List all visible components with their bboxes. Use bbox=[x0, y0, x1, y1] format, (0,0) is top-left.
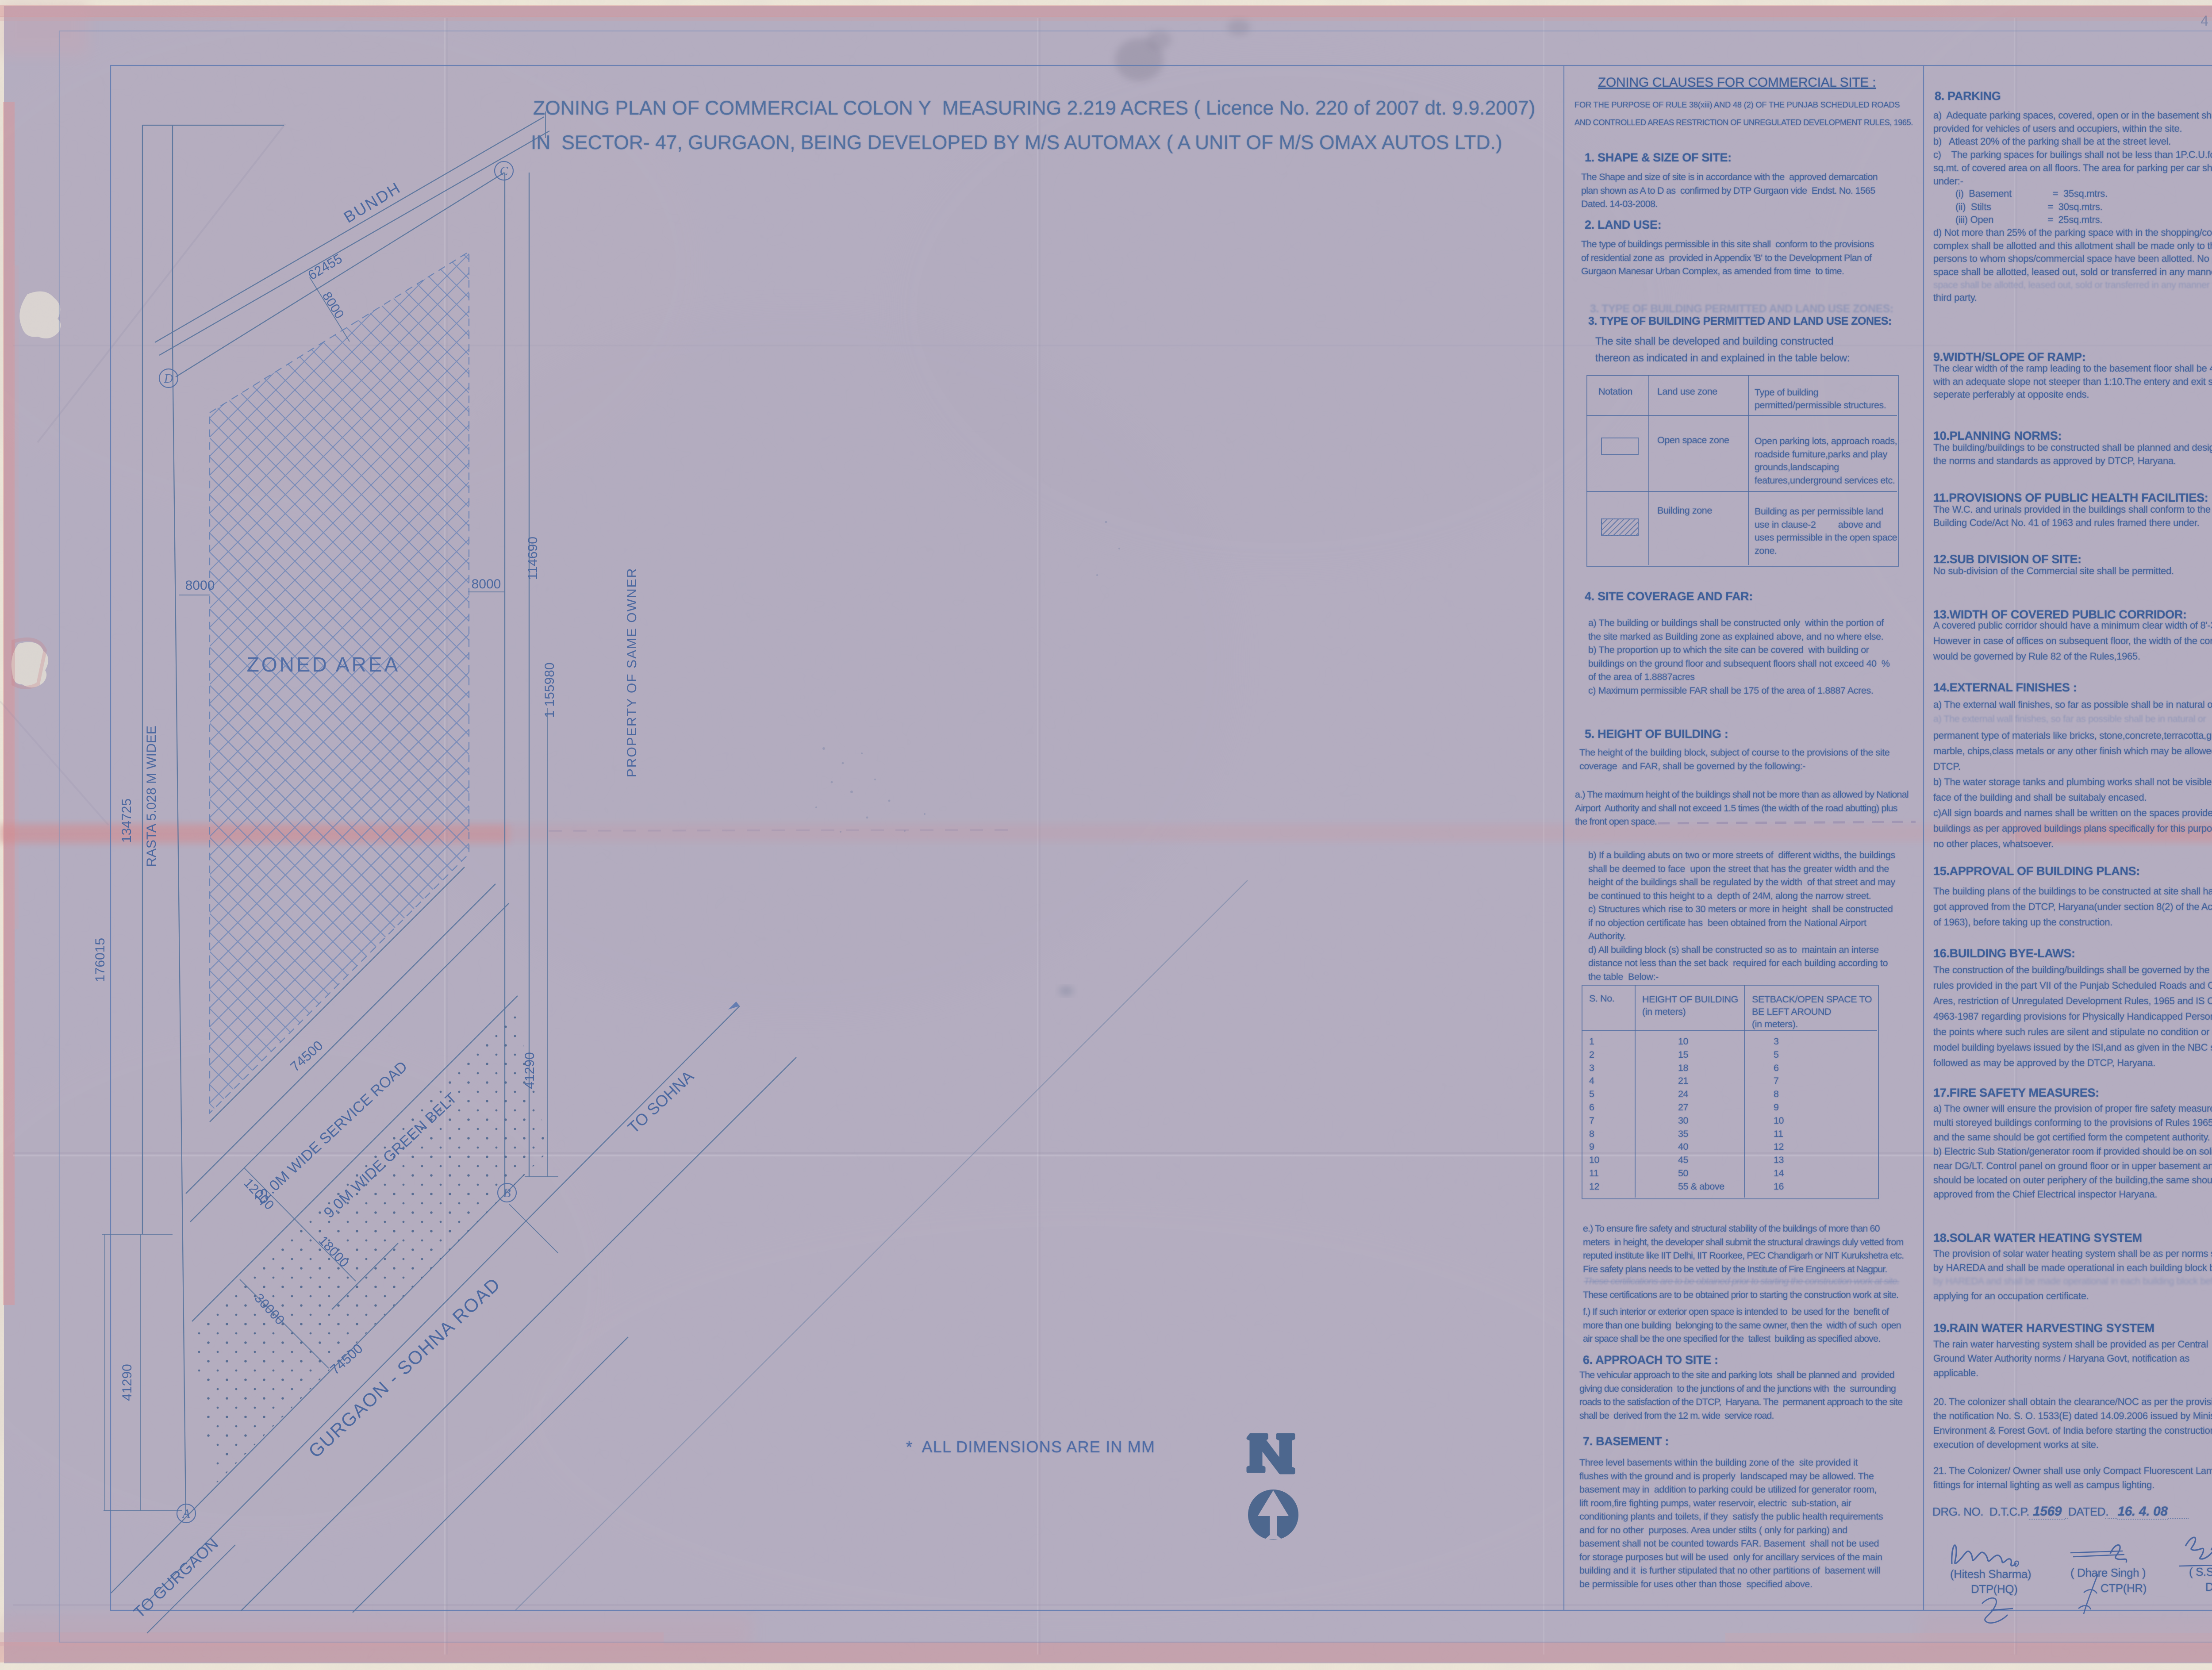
svg-text:D: D bbox=[164, 372, 173, 386]
svg-text:BUNDH: BUNDH bbox=[341, 178, 404, 227]
svg-text:B: B bbox=[503, 1186, 511, 1200]
svg-text:8000: 8000 bbox=[472, 577, 501, 591]
svg-text:114690: 114690 bbox=[526, 537, 540, 580]
svg-text:41290: 41290 bbox=[120, 1364, 134, 1401]
svg-text:176015: 176015 bbox=[93, 938, 108, 982]
svg-text:74500: 74500 bbox=[287, 1037, 326, 1075]
svg-text:62455: 62455 bbox=[306, 251, 345, 283]
svg-text:8000: 8000 bbox=[185, 578, 215, 593]
svg-text:RASTA 5.028 M WIDEE: RASTA 5.028 M WIDEE bbox=[144, 726, 159, 867]
svg-text:4: 4 bbox=[2200, 13, 2208, 29]
svg-text:TO SOHNA: TO SOHNA bbox=[624, 1067, 697, 1137]
svg-text:C: C bbox=[500, 165, 508, 178]
svg-text:8000: 8000 bbox=[319, 289, 346, 321]
svg-text:TO GURGAON: TO GURGAON bbox=[130, 1534, 222, 1621]
svg-text:1 155980: 1 155980 bbox=[542, 662, 557, 718]
svg-text:134725: 134725 bbox=[119, 799, 134, 843]
svg-text:A: A bbox=[181, 1507, 190, 1521]
svg-text:ZONED AREA: ZONED AREA bbox=[247, 653, 400, 676]
svg-text:PROPERTY OF SAME OWNER: PROPERTY OF SAME OWNER bbox=[625, 568, 639, 778]
svg-text:41290: 41290 bbox=[522, 1052, 537, 1089]
